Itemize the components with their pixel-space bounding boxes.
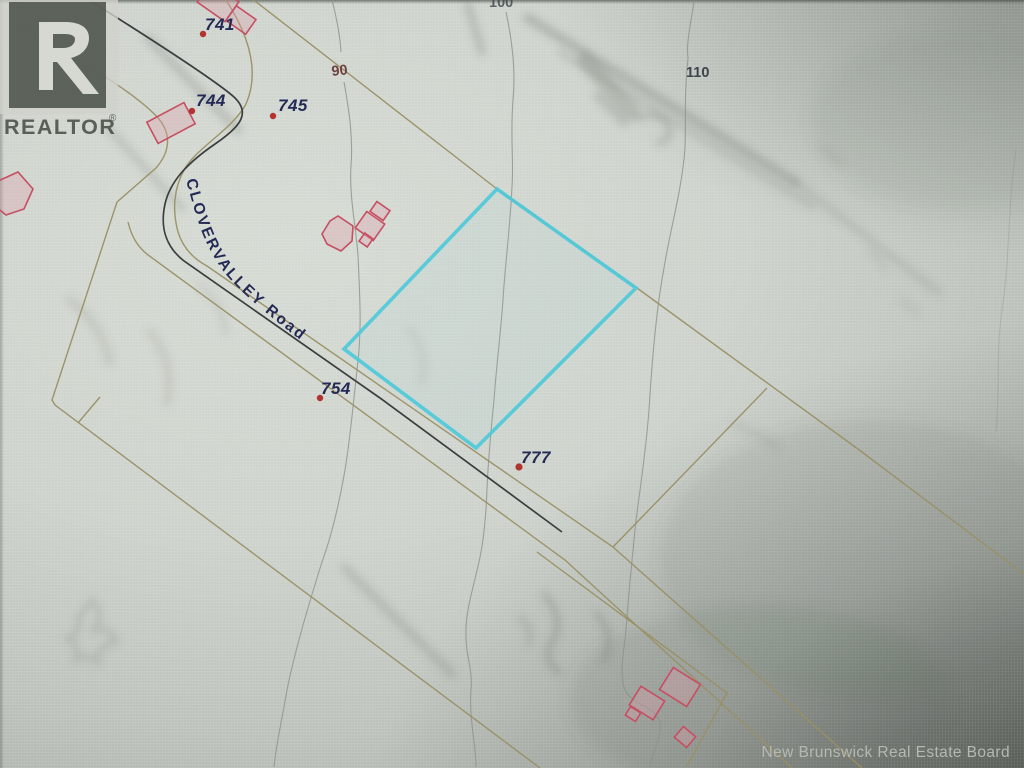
building — [322, 216, 353, 251]
contour-labels: 90 100 110 — [331, 0, 710, 81]
building — [0, 172, 33, 215]
terrain-shading-wash — [570, 30, 1024, 768]
property-map-photo: CLOVERVALLEY Road — [0, 0, 1024, 768]
realtor-logo: REALTOR ® — [0, 0, 118, 139]
lot-label-777: 777 — [521, 448, 552, 467]
lot-marker-dot — [270, 113, 276, 119]
contour-label-100: 100 — [489, 0, 513, 11]
road-name-label: CLOVERVALLEY Road — [182, 177, 310, 345]
lot-label-744: 744 — [196, 91, 226, 110]
lot-marker-dot — [189, 108, 195, 114]
map-canvas: CLOVERVALLEY Road — [0, 0, 1024, 768]
lot-label-741: 741 — [205, 15, 235, 34]
contour-label-90: 90 — [331, 62, 349, 80]
contour-label-110: 110 — [686, 65, 709, 81]
registered-trademark-symbol: ® — [109, 113, 117, 124]
attribution-text: New Brunswick Real Estate Board — [762, 744, 1010, 761]
lot-label-754: 754 — [321, 379, 351, 398]
lot-label-745: 745 — [278, 96, 308, 115]
parcel-line-spur — [78, 397, 100, 423]
highlighted-parcel-outline — [344, 189, 636, 448]
building — [147, 103, 195, 144]
realtor-wordmark: REALTOR — [4, 115, 116, 139]
